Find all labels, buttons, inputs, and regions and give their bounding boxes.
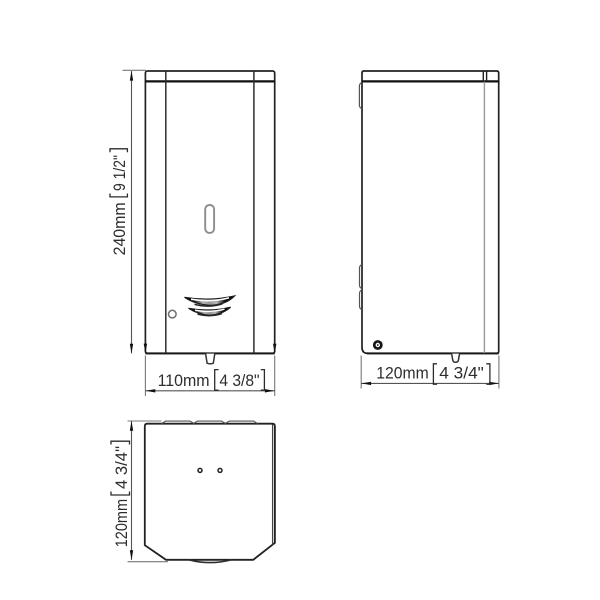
svg-text:120mm: 120mm (376, 364, 429, 382)
svg-text:240mm: 240mm (111, 202, 129, 255)
svg-text:4 3/4": 4 3/4" (113, 446, 131, 489)
svg-text:120mm: 120mm (113, 499, 131, 547)
svg-text:110mm: 110mm (158, 372, 210, 390)
svg-text:4 3/4": 4 3/4" (439, 364, 484, 382)
svg-text:9 1/2": 9 1/2" (111, 155, 129, 191)
svg-text:4 3/8": 4 3/8" (219, 372, 259, 390)
